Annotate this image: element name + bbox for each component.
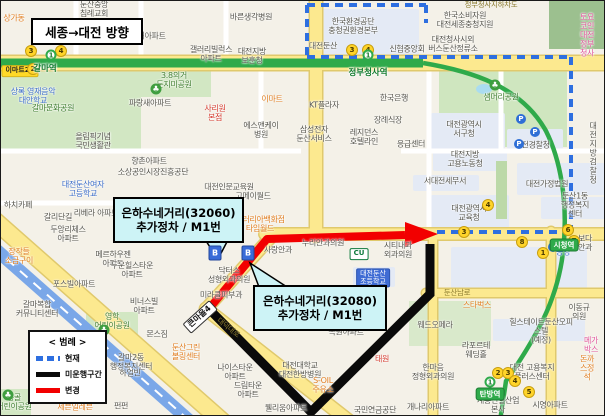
- legend-title: < 범례 >: [36, 335, 99, 348]
- map-label: 힐스테이트둔산오피스텔 (예정): [509, 319, 574, 346]
- map-label: 정부청사지하차도: [465, 1, 518, 9]
- map-label: 장례식장: [374, 117, 402, 126]
- parking-icon: P: [514, 139, 524, 149]
- map-label: 갈마복합 커뮤니티센터: [16, 301, 58, 319]
- bus-stop-icon: B: [209, 246, 222, 261]
- legend-swatch-suspended: [36, 372, 60, 377]
- parking-icon: P: [530, 127, 540, 137]
- stop-number-badge: 4: [55, 45, 67, 57]
- map-label: 서대전세무서: [424, 178, 466, 187]
- map-label: 리베라 아파트: [74, 210, 119, 219]
- map-label: 갈리단길: [44, 214, 72, 223]
- map-label: 파랑새아파트: [129, 100, 171, 109]
- map-label: 상록 영재음악 대안학교: [11, 88, 56, 106]
- map-label: 비너스빌 아파트: [130, 298, 158, 316]
- stop-number-badge: 1: [537, 247, 549, 259]
- map-label: 사리원 본점: [204, 105, 225, 123]
- map-label: 한국환경공단 충청권환경본부: [328, 18, 377, 36]
- map-label: 바른생각병원: [230, 14, 272, 23]
- map-label: 대전대학교 대전한방병원: [279, 362, 321, 380]
- map-label: 드림타운 아파트: [234, 382, 262, 400]
- map-label: 소상공인시장진흥공단: [118, 169, 189, 178]
- map-label: 한국은행: [380, 95, 408, 104]
- legend-row-suspended: 미운행구간: [36, 369, 99, 380]
- map-label: 둔산그린 볼링센터: [172, 344, 200, 362]
- map-label: 하얼빈: [119, 370, 140, 379]
- map-label: 두앙리체스 아파트: [50, 226, 85, 244]
- stop-number-badge: 3: [25, 45, 37, 57]
- stop-callout-32080: 은하수네거리(32080) 추가정차 / M1번: [253, 285, 387, 331]
- map-label: 대전둔산: [309, 43, 337, 52]
- map-label: 갤러리빌럭스 아파트: [190, 46, 232, 64]
- stop-callout-32060-name: 은하수네거리(32060): [115, 206, 242, 220]
- stop-number-badge: 3: [458, 226, 470, 238]
- stop-callout-32080-detail: 추가정차 / M1번: [255, 308, 385, 322]
- map-canvas[interactable]: 둔산중앙 침례교회상가동지개아파트바른생각병원한국환경공단 충청권환경본부대전둔…: [0, 0, 605, 416]
- map-label: 펀펀: [114, 403, 128, 412]
- map-label: 3.8의거 둔지미공원: [156, 72, 191, 90]
- subway-line1-badge: 1: [363, 50, 374, 61]
- stop-number-badge: 4: [509, 375, 521, 387]
- map-label: 대전광역시 교육청: [451, 205, 486, 223]
- map-label: 미라클피부과: [200, 292, 242, 301]
- map-label: 둔산중앙 침례교회: [80, 1, 108, 19]
- subway-line1-badge: 1: [46, 50, 57, 61]
- map-label: 응급센터: [397, 141, 425, 150]
- park-icon: ♣: [3, 390, 14, 401]
- stop-number-badge: 8: [516, 236, 528, 248]
- map-label: KT플라자: [309, 102, 339, 111]
- subway-station-label: 갈마역: [33, 62, 56, 74]
- stop-callout-32060: 은하수네거리(32060) 추가정차 / M1번: [113, 197, 244, 243]
- map-label: 레지던스 호텔라인: [350, 129, 378, 147]
- map-label: 웰리움아파트: [265, 405, 307, 414]
- legend-swatch-changed: [36, 388, 60, 393]
- map-label: 갈마문화공원: [32, 105, 74, 114]
- legend-row-changed: 변경: [36, 385, 99, 396]
- map-label: 돈까스정석: [578, 356, 597, 383]
- map-label: 상가동: [3, 15, 24, 24]
- map-label: 메가박스: [584, 337, 599, 355]
- map-label: 삼성전자 둔산서비스: [296, 126, 331, 144]
- direction-callout: 세종→대전 방향: [31, 18, 143, 45]
- park-icon: ♣: [151, 84, 162, 95]
- map-label: 둔산남로: [444, 289, 470, 297]
- stop-number-badge: 4: [482, 199, 494, 211]
- legend-label-changed: 변경: [65, 385, 80, 396]
- map-label: 대전지방 보훈청: [238, 48, 266, 66]
- map-label: 샘머리공원: [483, 94, 518, 103]
- stop-number-badge: 5: [523, 386, 535, 398]
- legend-label-current: 현재: [65, 353, 80, 364]
- map-label: 토요코인 대전정부청사: [578, 14, 597, 59]
- map-label: 웨드오페라: [417, 322, 452, 331]
- subway-line1-badge: 1: [485, 377, 496, 388]
- map-label: 하치카페: [4, 202, 32, 211]
- map-chip: 큰마을4: [182, 300, 217, 333]
- map-label: 대전지방 고용노동청: [447, 151, 482, 169]
- map-label: 라포르테 웨딩홀: [462, 342, 490, 360]
- map-chip: CU: [350, 248, 369, 260]
- map-label: 이동규의원: [566, 304, 593, 322]
- legend-row-current: 현재: [36, 353, 99, 364]
- park-icon: ♣: [490, 80, 501, 91]
- stop-callout-32060-detail: 추가정차 / M1번: [115, 220, 242, 234]
- map-label: 개나리아파트: [407, 404, 449, 413]
- subway-station-label: 탄방역: [476, 388, 505, 401]
- map-label: 시영아파트: [532, 402, 567, 411]
- map-label: 한국소비자원 대전세종충청지원: [437, 12, 493, 30]
- map-label: 몬스짐: [146, 331, 167, 340]
- map-label: 두운힐스타운 아파트: [111, 262, 153, 280]
- map-label: 닥터스 성형외과의원: [208, 267, 250, 285]
- map-label: 대덕대로: [215, 317, 241, 340]
- legend-label-suspended: 미운행구간: [65, 369, 102, 380]
- subway-station-label: 정부청사역: [348, 66, 387, 78]
- map-label: 갈마2동 행정복지센터: [110, 354, 152, 372]
- map-label: 에스앤케이 병원: [243, 122, 278, 140]
- map-label: 대전청사시외 버스둔산정류소: [428, 36, 477, 54]
- map-label: 시티내과 외과의원: [384, 242, 412, 260]
- stop-number-badge: 3: [346, 44, 358, 56]
- map-label: 대전가정법원: [526, 181, 568, 190]
- parking-icon: P: [516, 114, 526, 124]
- map-label: 메르하우젠 아파트: [95, 251, 130, 269]
- map-label: 대전둔산여자 고등학교: [62, 181, 104, 199]
- map-label: 세븐일레븐: [57, 404, 92, 413]
- map-label: 장작들 소금구이: [5, 248, 33, 266]
- map-label: 사랑안과: [264, 247, 292, 256]
- map-label: 신협중앙회: [389, 46, 424, 55]
- map-label: 한마음 정형외과의원: [412, 364, 454, 382]
- map-label: 이마트: [261, 96, 282, 105]
- map-label: 스타벅스: [463, 302, 491, 311]
- map-label: 둔산1동 행정복지센터: [560, 193, 591, 220]
- legend-swatch-current: [36, 356, 60, 361]
- bus-stop-icon: B: [242, 246, 255, 261]
- map-label: 향촌아파트: [131, 158, 166, 167]
- subway-station-label: 시청역: [550, 239, 579, 252]
- direction-callout-text: 세종→대전 방향: [45, 22, 129, 41]
- map-label: 대전인문교육원: [204, 184, 253, 193]
- legend-box: < 범례 > 현재 미운행구간 변경: [28, 330, 107, 404]
- map-label: 대전지방검찰청: [587, 123, 600, 186]
- map-label: 국민연금공단: [354, 407, 396, 416]
- map-label: 나이스타운 아파트: [217, 364, 252, 382]
- stop-callout-32080-name: 은하수네거리(32080): [255, 294, 385, 308]
- map-label: 태원: [375, 356, 389, 365]
- map-label: 포스빌아파트: [53, 281, 95, 290]
- map-label: 누리안과의원: [302, 240, 344, 249]
- map-label: 대전광역시 서구청: [446, 121, 481, 139]
- map-label: S-OIL 주유소: [312, 377, 333, 395]
- map-label: 올림픽기념 국민생활관: [75, 133, 110, 151]
